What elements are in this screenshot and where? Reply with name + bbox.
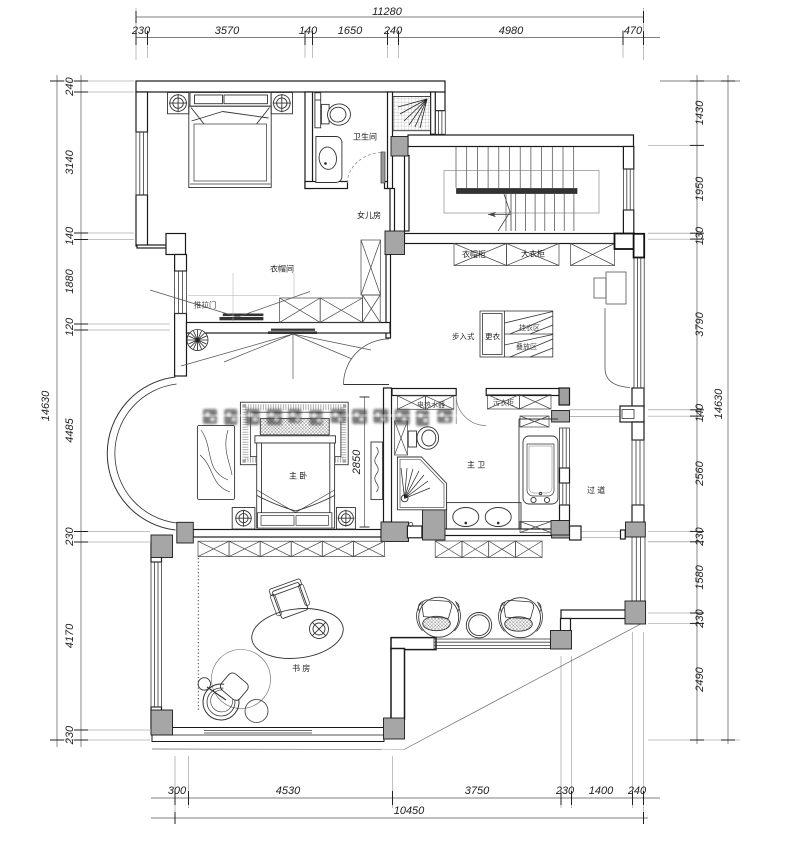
svg-text:女儿房: 女儿房 [357,210,381,220]
svg-text:叠放区: 叠放区 [516,342,537,351]
svg-text:更衣: 更衣 [485,331,500,341]
svg-text:卫生间: 卫生间 [353,132,377,142]
svg-text:14630: 14630 [40,390,52,421]
svg-text:2490: 2490 [694,666,706,692]
svg-text:1400: 1400 [589,785,614,797]
svg-text:140: 140 [299,25,318,37]
svg-text:2850: 2850 [351,449,363,475]
svg-text:240: 240 [627,785,647,797]
svg-text:140: 140 [694,403,706,422]
svg-text:2560: 2560 [694,460,706,486]
svg-text:大衣柜: 大衣柜 [521,249,545,259]
svg-text:步入式: 步入式 [452,331,475,341]
svg-text:230: 230 [64,725,76,745]
svg-text:3140: 3140 [64,149,76,174]
svg-text:10450: 10450 [394,805,425,817]
svg-text:衣帽间: 衣帽间 [270,264,294,274]
svg-text:3790: 3790 [694,311,706,336]
svg-text:240: 240 [64,76,76,96]
svg-text:3570: 3570 [215,25,240,37]
svg-text:1430: 1430 [694,100,706,125]
svg-text:电热水器: 电热水器 [417,400,445,409]
svg-text:4530: 4530 [276,785,301,797]
svg-text:4170: 4170 [64,623,76,648]
svg-text:11280: 11280 [372,6,403,18]
svg-text:推拉门: 推拉门 [194,300,217,310]
svg-text:主 卧: 主 卧 [289,471,307,481]
svg-text:过 道: 过 道 [587,485,605,495]
svg-text:230: 230 [694,608,706,628]
svg-text:130: 130 [694,226,706,245]
svg-text:挂衣区: 挂衣区 [519,323,540,332]
svg-text:污衣柜: 污衣柜 [493,398,514,407]
svg-text:主 卫: 主 卫 [467,460,485,470]
svg-text:120: 120 [64,317,76,336]
svg-text:1650: 1650 [338,25,363,37]
svg-text:1880: 1880 [64,268,76,293]
svg-text:14630: 14630 [713,388,725,419]
svg-text:230: 230 [64,526,76,546]
svg-text:4980: 4980 [499,25,524,37]
svg-text:衣帽柜: 衣帽柜 [462,249,486,259]
svg-text:230: 230 [555,785,575,797]
svg-text:240: 240 [383,25,403,37]
svg-text:470: 470 [624,25,643,37]
svg-text:230: 230 [131,25,151,37]
svg-text:书 房: 书 房 [292,663,310,673]
svg-text:1580: 1580 [694,564,706,589]
svg-text:300: 300 [168,785,187,797]
svg-text:3750: 3750 [465,785,490,797]
svg-text:4485: 4485 [64,417,76,442]
svg-text:140: 140 [64,226,76,245]
svg-text:1950: 1950 [694,176,706,201]
svg-text:230: 230 [694,526,706,546]
